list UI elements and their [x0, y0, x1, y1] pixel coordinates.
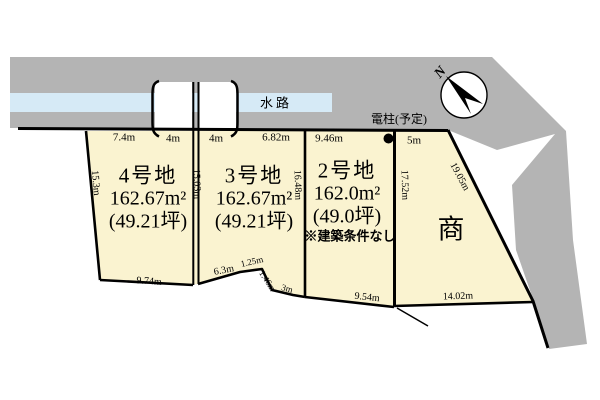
plot-2-note: ※建築条件なし	[304, 230, 395, 243]
land-plot-diagram: 水路 電柱(予定) N 7.4m 4m 4m 6.82m 9.46m 5m 15…	[0, 0, 600, 400]
utility-pole-dot	[384, 134, 394, 144]
dim-mid-17-52m: 17.52m	[398, 170, 409, 201]
dim-bottom-9-74m: 9.74m	[136, 276, 162, 288]
plot-2-label-block: 2号地 162.0m² (49.0坪)	[313, 160, 381, 229]
dim-top-9-46m: 9.46m	[315, 134, 343, 145]
dim-top-4m-a: 4m	[166, 134, 180, 145]
dim-top-6-82m: 6.82m	[262, 133, 290, 144]
dim-top-7-4m: 7.4m	[113, 133, 135, 144]
dim-bottom-14-02m: 14.02m	[443, 291, 474, 302]
dim-top-4m-b: 4m	[209, 134, 223, 145]
plot-sho-name: 商	[438, 217, 465, 244]
dim-top-5m: 5m	[407, 136, 421, 147]
bridge-gap-left	[155, 82, 192, 128]
plot-3-tsubo: (49.21坪)	[215, 211, 293, 234]
plot-3-name: 3号地	[215, 165, 293, 188]
plot-4-label-block: 4号地 162.67m² (49.21坪)	[109, 165, 187, 234]
dim-mid-15-03m: 15.03m	[190, 169, 201, 200]
plot-2-tsubo: (49.0坪)	[313, 206, 381, 229]
plot-2-name: 2号地	[313, 160, 381, 183]
south-road-stub-line	[397, 308, 428, 326]
plot-4-area: 162.67m²	[109, 188, 187, 211]
bridge-gap-right	[199, 82, 236, 128]
plot-4-name: 4号地	[109, 165, 187, 188]
plot-2-area: 162.0m²	[313, 183, 381, 206]
dim-left-15-3m: 15.3m	[89, 170, 101, 196]
waterway-label: 水路	[260, 97, 292, 110]
plot-4-tsubo: (49.21坪)	[109, 211, 187, 234]
road-bottom-line	[18, 129, 448, 131]
utility-pole-label: 電柱(予定)	[371, 113, 427, 125]
plot-3-label-block: 3号地 162.67m² (49.21坪)	[215, 165, 293, 234]
plot-3-area: 162.67m²	[215, 188, 293, 211]
